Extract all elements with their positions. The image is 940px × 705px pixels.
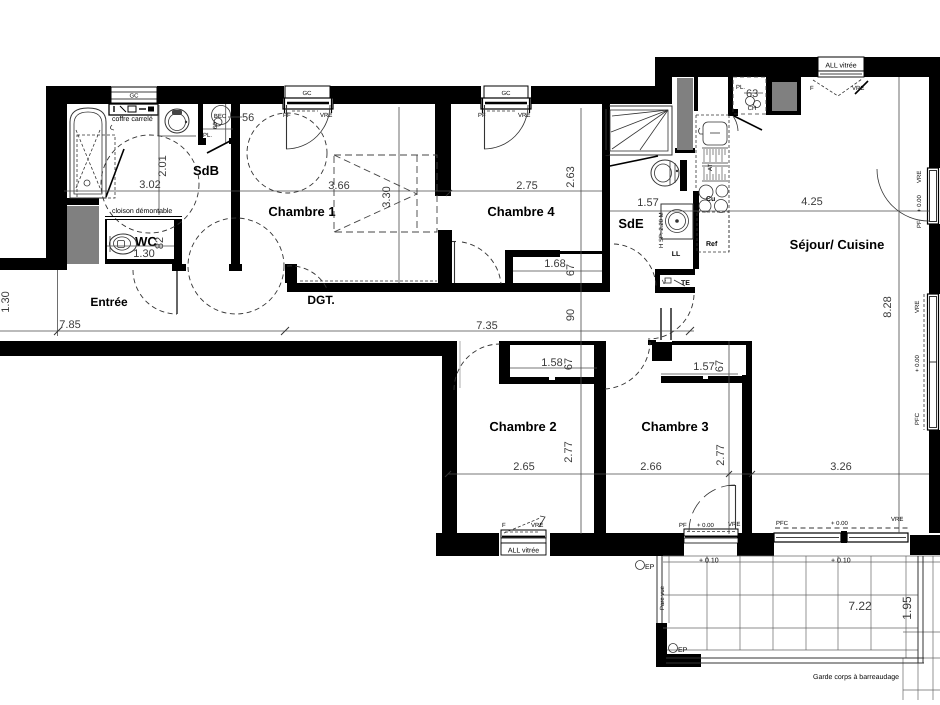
svg-text:2.01: 2.01 — [157, 155, 169, 176]
svg-text:1.68: 1.68 — [544, 258, 565, 270]
svg-text:Chambre 2: Chambre 2 — [489, 419, 556, 434]
svg-text:Garde corps à barreaudage: Garde corps à barreaudage — [813, 673, 899, 681]
svg-text:67: 67 — [565, 264, 577, 276]
svg-text:LL: LL — [672, 251, 681, 258]
svg-text:GC: GC — [130, 93, 140, 100]
svg-text:VRE: VRE — [916, 171, 923, 183]
svg-text:+ 0.00: + 0.00 — [831, 520, 849, 527]
svg-text:1.57: 1.57 — [693, 361, 714, 373]
svg-text:3.30: 3.30 — [381, 186, 393, 207]
svg-text:CH: CH — [748, 105, 757, 112]
svg-text:ALL vitrée: ALL vitrée — [825, 62, 856, 70]
svg-text:F: F — [502, 522, 506, 529]
svg-text:Chambre 4: Chambre 4 — [487, 204, 555, 219]
svg-text:Cu: Cu — [706, 196, 715, 203]
svg-text:+ 0.00: + 0.00 — [916, 194, 923, 212]
svg-text:7.35: 7.35 — [476, 320, 497, 332]
svg-text:+ 0.10: + 0.10 — [699, 558, 719, 565]
svg-text:2.77: 2.77 — [563, 441, 575, 462]
svg-text:3.02: 3.02 — [139, 179, 160, 191]
svg-text:8.28: 8.28 — [882, 296, 894, 317]
svg-text:Chambre 1: Chambre 1 — [268, 204, 335, 219]
svg-text:DGT.: DGT. — [307, 293, 334, 307]
svg-text:PL.: PL. — [203, 132, 212, 139]
svg-text:1.95: 1.95 — [900, 596, 914, 620]
svg-text:7.85: 7.85 — [59, 319, 80, 331]
svg-text:67: 67 — [563, 358, 575, 370]
svg-text:coffre carrelé: coffre carrelé — [112, 115, 153, 123]
svg-text:PFC: PFC — [914, 412, 921, 425]
svg-text:2.75: 2.75 — [516, 180, 537, 192]
svg-text:VRE: VRE — [320, 112, 332, 119]
svg-text:1.30: 1.30 — [133, 248, 154, 260]
svg-text:PFC: PFC — [776, 520, 789, 527]
svg-text:2.77: 2.77 — [715, 444, 727, 465]
svg-text:Ref: Ref — [706, 240, 718, 248]
svg-text:2.65: 2.65 — [513, 461, 534, 473]
svg-text:3.26: 3.26 — [830, 461, 851, 473]
svg-text:3.66: 3.66 — [328, 180, 349, 192]
svg-text:VRE: VRE — [914, 301, 921, 313]
svg-text:Pare vue: Pare vue — [659, 585, 666, 610]
svg-text:+ 0.00: + 0.00 — [697, 522, 715, 529]
svg-text:Entrée: Entrée — [90, 295, 128, 309]
svg-text:AT: AT — [707, 163, 714, 171]
svg-text:7.22: 7.22 — [848, 599, 872, 613]
svg-text:VRE: VRE — [728, 521, 740, 528]
svg-text:V: V — [662, 279, 666, 286]
svg-text:1.30: 1.30 — [0, 291, 12, 312]
svg-text:F: F — [810, 85, 814, 92]
svg-text:cloison démontable: cloison démontable — [112, 207, 172, 215]
svg-text:SdE: SdE — [618, 216, 644, 231]
svg-text:PL.: PL. — [736, 84, 745, 91]
svg-text:1.57: 1.57 — [637, 197, 658, 209]
svg-text:GC: GC — [303, 90, 313, 97]
svg-text:VRE: VRE — [852, 85, 864, 92]
svg-text:82: 82 — [154, 237, 166, 249]
svg-text:4.25: 4.25 — [801, 196, 822, 208]
svg-text:90: 90 — [565, 309, 577, 321]
svg-text:VRE: VRE — [518, 112, 530, 119]
svg-text:PF: PF — [916, 220, 923, 228]
svg-text:EP: EP — [678, 647, 688, 654]
svg-text:PF: PF — [679, 522, 687, 529]
svg-text:60: 60 — [212, 122, 219, 129]
svg-text:1.58: 1.58 — [541, 357, 562, 369]
svg-text:GC: GC — [502, 90, 512, 97]
svg-text:63: 63 — [746, 88, 758, 100]
svg-text:67: 67 — [714, 360, 726, 372]
svg-text:+ 0.10: + 0.10 — [831, 558, 851, 565]
svg-text:Chambre 3: Chambre 3 — [641, 419, 708, 434]
svg-text:ALL vitrée: ALL vitrée — [508, 547, 539, 555]
svg-text:2.66: 2.66 — [640, 461, 661, 473]
svg-text:TE: TE — [681, 280, 690, 287]
svg-text:H SP: 2.20 M: H SP: 2.20 M — [658, 212, 665, 248]
svg-text:Séjour/ Cuisine: Séjour/ Cuisine — [790, 237, 885, 252]
svg-text:56: 56 — [242, 112, 254, 124]
svg-text:EP: EP — [645, 564, 655, 571]
svg-text:VRE: VRE — [531, 522, 543, 529]
svg-text:VRE: VRE — [891, 516, 903, 523]
svg-text:2.63: 2.63 — [565, 166, 577, 187]
svg-text:+ 0.00: + 0.00 — [914, 354, 921, 372]
